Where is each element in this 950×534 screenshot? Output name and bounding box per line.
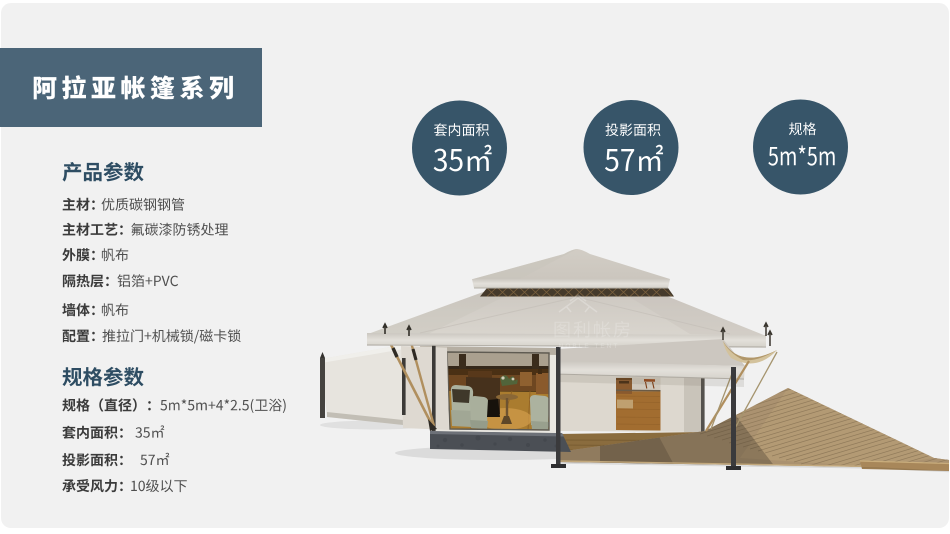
svg-text:NOBLE TENT: NOBLE TENT	[559, 343, 620, 350]
